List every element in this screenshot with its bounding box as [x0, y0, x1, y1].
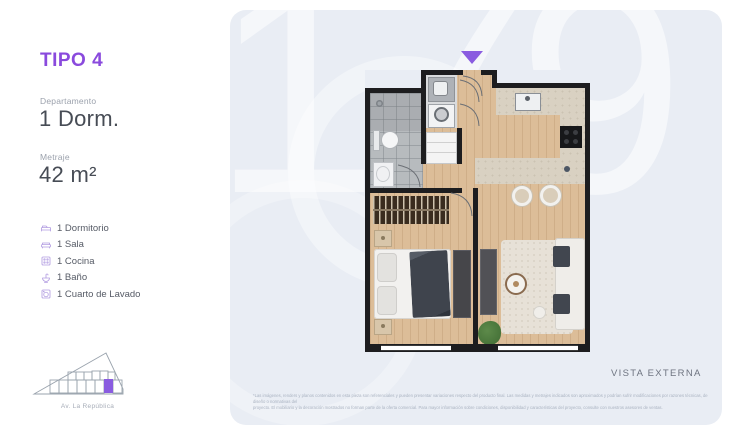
kitchen-faucet [525, 96, 530, 101]
disclaimer-line: *Las imágenes, renders y planos contenid… [253, 393, 715, 405]
laundry-sink [433, 81, 448, 96]
feature-label: 1 Cuarto de Lavado [57, 289, 140, 300]
coffee-table-decor [513, 281, 519, 287]
disclaimer-line: proyecto. El mobiliario y la decoración … [253, 405, 715, 411]
nightstand-lamp [381, 236, 385, 240]
bedroom-dresser [453, 250, 471, 318]
bar-stool [512, 186, 532, 206]
bathroom-sink [376, 166, 390, 182]
sofa-icon [40, 239, 52, 251]
tv-console [480, 249, 497, 315]
metraje-value: 42 m² [39, 162, 97, 188]
feature-label: 1 Sala [57, 239, 84, 250]
toilet-tank [373, 130, 380, 151]
nightstand-lamp [381, 324, 385, 328]
closet-shelf [427, 142, 456, 143]
living-window [498, 345, 578, 351]
exterior-patch [497, 70, 590, 83]
washer-icon [40, 288, 52, 300]
metraje-label: Metraje [40, 152, 70, 162]
washing-machine-door [434, 107, 449, 122]
wall [365, 88, 370, 350]
stove-icon [40, 255, 52, 267]
wall [457, 128, 462, 164]
shower-zone [370, 93, 423, 131]
feature-lavado: 1 Cuarto de Lavado [40, 286, 220, 303]
feature-list: 1 Dormitorio 1 Sala 1 Cocina 1 Baño 1 Cu… [40, 220, 220, 303]
burner [564, 139, 569, 144]
bedroom-window [381, 345, 451, 351]
closet-rod [373, 209, 449, 211]
burner [573, 130, 578, 135]
feature-label: 1 Dormitorio [57, 223, 109, 234]
sink-icon [40, 272, 52, 284]
plan-card: 179 [230, 10, 722, 425]
legal-disclaimer: *Las imágenes, renders y planos contenid… [253, 393, 715, 411]
vista-externa-label: VISTA EXTERNA [611, 368, 702, 379]
wall [492, 83, 590, 88]
burner [573, 139, 578, 144]
pillow [377, 253, 397, 282]
departamento-label: Departamento [40, 96, 96, 106]
page-title: TIPO 4 [40, 50, 103, 72]
bar-stool [540, 185, 561, 206]
toilet-bowl [381, 131, 399, 149]
wall [365, 88, 423, 93]
pouf [533, 306, 546, 319]
sofa-cushion [553, 246, 570, 267]
entrance-arrow-icon [461, 51, 483, 64]
wall [421, 70, 426, 164]
wall [365, 188, 462, 193]
feature-bano: 1 Baño [40, 270, 220, 287]
bed-throw [409, 250, 450, 318]
pillow [377, 286, 397, 315]
cooktop [560, 126, 582, 148]
island-faucet [564, 166, 570, 172]
highlighted-unit [104, 379, 113, 393]
feature-label: 1 Baño [57, 272, 87, 283]
wall [473, 188, 478, 350]
feature-sala: 1 Sala [40, 237, 220, 254]
shower-head [376, 100, 383, 107]
burner [564, 130, 569, 135]
floor-plan [365, 70, 595, 355]
exterior-patch [365, 70, 421, 88]
closet-shelf [427, 152, 456, 153]
feature-label: 1 Cocina [57, 256, 95, 267]
brochure-page: { "panel": { "tipo": "TIPO 4", "departam… [0, 0, 730, 439]
wall [421, 70, 463, 75]
departamento-value: 1 Dorm. [39, 106, 119, 132]
feature-dormitorio: 1 Dormitorio [40, 220, 220, 237]
wall [585, 83, 590, 350]
plant [478, 321, 501, 345]
hall-closet [426, 132, 457, 164]
feature-cocina: 1 Cocina [40, 253, 220, 270]
bed-icon [40, 222, 52, 234]
sofa-cushion [553, 294, 570, 314]
street-label: Av. La República [30, 403, 145, 410]
